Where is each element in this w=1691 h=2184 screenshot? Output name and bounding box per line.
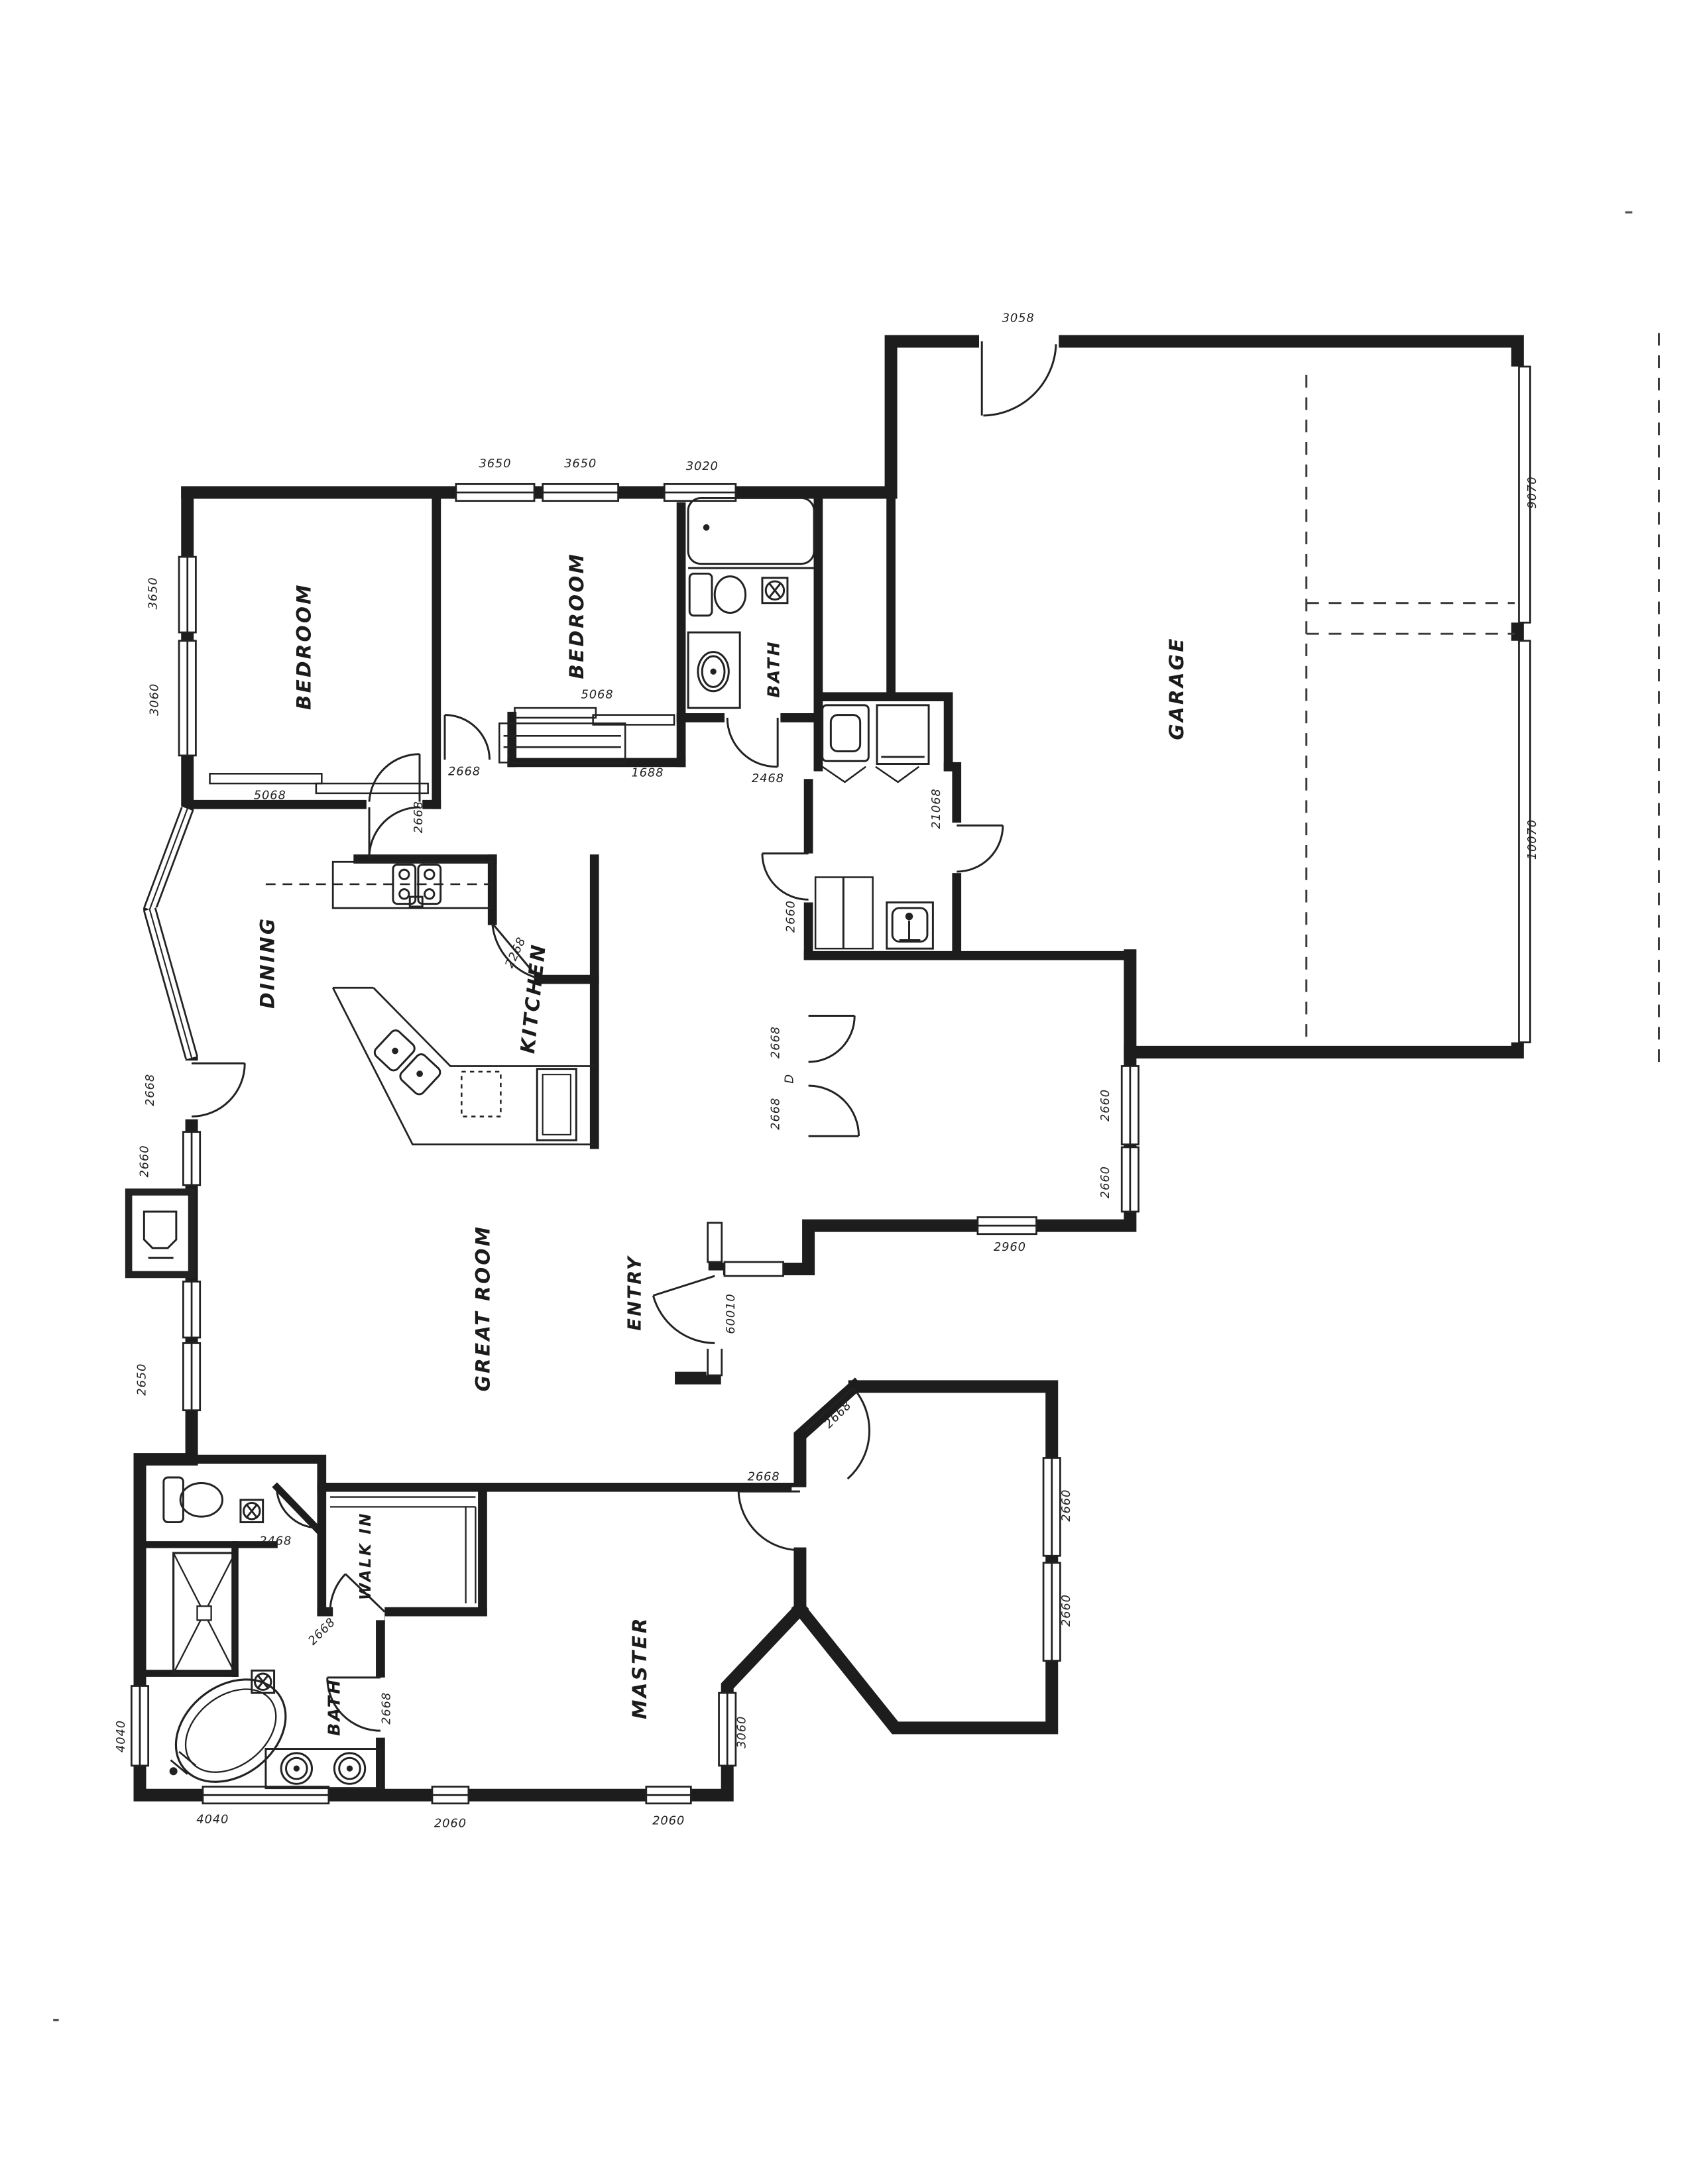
closet-shelves-corridor xyxy=(815,877,873,948)
window-2060-a xyxy=(432,1785,469,1805)
window-3650-left xyxy=(178,557,198,632)
room-label-entry-7: ENTRY xyxy=(624,1255,645,1331)
doors xyxy=(183,333,1059,1737)
room-label-bedroom-0: BEDROOM xyxy=(292,583,315,710)
dim-label-2668-9: 2668 xyxy=(448,764,481,778)
dim-label-2668-13: 2668 xyxy=(412,801,426,833)
door-room-diagonal xyxy=(805,1388,869,1479)
window-3020 xyxy=(664,483,736,502)
toilet-main xyxy=(689,573,745,615)
garage-dashed-lines xyxy=(1307,333,1659,1066)
dim-label-5068-8: 5068 xyxy=(581,687,613,701)
stove xyxy=(393,864,441,906)
interior-walls xyxy=(140,492,1130,1795)
door-front-entry xyxy=(653,1271,723,1349)
fixtures xyxy=(129,498,933,1803)
window-2660-gr-b xyxy=(182,1282,202,1338)
dim-label-2668-17: 2668 xyxy=(768,1026,782,1059)
dim-label-4040-36: 4040 xyxy=(196,1812,229,1826)
dim-label-2660-30: 2660 xyxy=(1059,1594,1073,1627)
door-den-b xyxy=(800,1086,859,1136)
window-2660-den-a xyxy=(1120,1066,1140,1144)
floor-plan-drawing: BEDROOMBEDROOMBATHGARAGEDININGKITCHENGRE… xyxy=(0,0,1691,2184)
refrigerator xyxy=(537,1069,576,1141)
dim-label-2060-37: 2060 xyxy=(434,1817,467,1831)
window-3650-a xyxy=(456,483,534,502)
utility-sink xyxy=(887,902,933,948)
dim-label-3650-2: 3650 xyxy=(564,457,597,471)
dim-label-2668-33: 2668 xyxy=(306,1615,338,1648)
window-2660-room-a xyxy=(1042,1458,1062,1556)
door-3058 xyxy=(979,333,1059,416)
room-label-garage-3: GARAGE xyxy=(1165,636,1188,740)
dim-label-2668-23: 2668 xyxy=(143,1074,157,1106)
bathtub-main xyxy=(688,498,814,568)
dim-label-1688-10: 1688 xyxy=(631,766,664,780)
entry-sidelight-a xyxy=(707,1223,723,1262)
room-label-dining-4: DINING xyxy=(257,917,279,1009)
dim-label-3060-7: 3060 xyxy=(147,683,161,716)
window-2660-room-b xyxy=(1042,1563,1062,1661)
toilet-master xyxy=(164,1477,223,1523)
room-label-bath-10: BATH xyxy=(324,1678,344,1736)
shower xyxy=(174,1553,235,1674)
dim-label-d-18: D xyxy=(782,1074,796,1084)
dim-label-4040-35: 4040 xyxy=(114,1720,128,1753)
window-2660-den-b xyxy=(1120,1147,1140,1212)
bay-window-lower xyxy=(144,908,197,1059)
dim-label-2650-25: 2650 xyxy=(135,1363,148,1396)
room-label-walk-in-9: WALK IN xyxy=(357,1511,375,1600)
linen-closet xyxy=(499,723,625,762)
dim-label-2668-34: 2668 xyxy=(380,1692,394,1725)
window-3060-left xyxy=(178,641,198,756)
dim-label-2660-20: 2660 xyxy=(1098,1089,1112,1121)
dryer xyxy=(877,705,929,764)
window-2060-b xyxy=(646,1785,691,1805)
dim-label-2960-22: 2960 xyxy=(994,1240,1026,1254)
dim-label-2468-32: 2468 xyxy=(259,1534,292,1548)
dim-label-9070-4: 9070 xyxy=(1525,477,1539,509)
dim-label-60010-26: 60010 xyxy=(724,1293,738,1334)
dim-label-3020-3: 3020 xyxy=(686,459,719,473)
dim-label-3650-6: 3650 xyxy=(146,577,160,609)
dim-label-3058-0: 3058 xyxy=(1002,311,1035,325)
door-dining-exterior xyxy=(183,1061,245,1120)
kitchen-counter-lower xyxy=(333,988,595,1144)
window-3060-master xyxy=(717,1693,737,1766)
fan-icon-main-bath xyxy=(762,578,787,603)
door-master xyxy=(738,1487,809,1550)
dim-label-21068-15: 21068 xyxy=(929,788,943,829)
door-bath1 xyxy=(725,709,780,767)
dim-label-2668-19: 2668 xyxy=(768,1098,782,1130)
door-bed2 xyxy=(442,715,493,771)
closet-bed2 xyxy=(514,708,674,724)
walkin-shelves xyxy=(330,1497,475,1603)
vanity-master xyxy=(266,1749,380,1788)
dim-label-10070-5: 10070 xyxy=(1525,819,1539,860)
window-2650-gr xyxy=(182,1343,202,1410)
windows xyxy=(130,367,1530,1805)
window-3650-b xyxy=(543,483,618,502)
window-4040-left xyxy=(130,1686,150,1766)
dim-label-2660-21: 2660 xyxy=(1098,1166,1112,1198)
door-garage-entry xyxy=(949,823,1003,873)
fan-icon-master-nook xyxy=(241,1500,263,1523)
dim-label-2668-28: 2668 xyxy=(748,1469,780,1483)
labels-layer: BEDROOMBEDROOMBATHGARAGEDININGKITCHENGRE… xyxy=(114,311,1539,1830)
window-2960 xyxy=(978,1216,1037,1236)
dishwasher xyxy=(461,1072,500,1117)
laundry-bifold xyxy=(823,767,919,782)
dim-label-3060-31: 3060 xyxy=(735,1716,749,1749)
door-hall-gr xyxy=(762,854,817,903)
exterior-walls xyxy=(140,341,1517,1795)
window-2660-gr-a xyxy=(182,1132,202,1185)
dim-label-2660-29: 2660 xyxy=(1059,1489,1073,1522)
vanity-main-bath xyxy=(688,632,740,708)
dim-label-2660-16: 2660 xyxy=(784,900,797,933)
door-den-a xyxy=(800,1015,854,1063)
room-label-master-8: MASTER xyxy=(628,1616,651,1719)
closet-bed1 xyxy=(210,774,428,793)
dim-label-2468-11: 2468 xyxy=(752,772,784,785)
tub-faucet xyxy=(170,1752,196,1774)
entry-transom xyxy=(725,1261,784,1277)
dim-label-5068-12: 5068 xyxy=(254,788,286,802)
garden-tub xyxy=(156,1658,306,1803)
fireplace xyxy=(129,1192,192,1275)
dim-label-2060-38: 2060 xyxy=(652,1814,685,1828)
bay-window-upper xyxy=(144,807,193,911)
dim-label-2660-24: 2660 xyxy=(138,1145,152,1177)
dim-label-3650-1: 3650 xyxy=(479,457,511,471)
room-label-bedroom-1: BEDROOM xyxy=(565,552,588,679)
room-label-bath-2: BATH xyxy=(763,640,783,698)
washer xyxy=(823,705,869,761)
room-label-great-room-6: GREAT ROOM xyxy=(472,1225,495,1392)
floor-plan-sheet: BEDROOMBEDROOMBATHGARAGEDININGKITCHENGRE… xyxy=(0,0,1691,2184)
